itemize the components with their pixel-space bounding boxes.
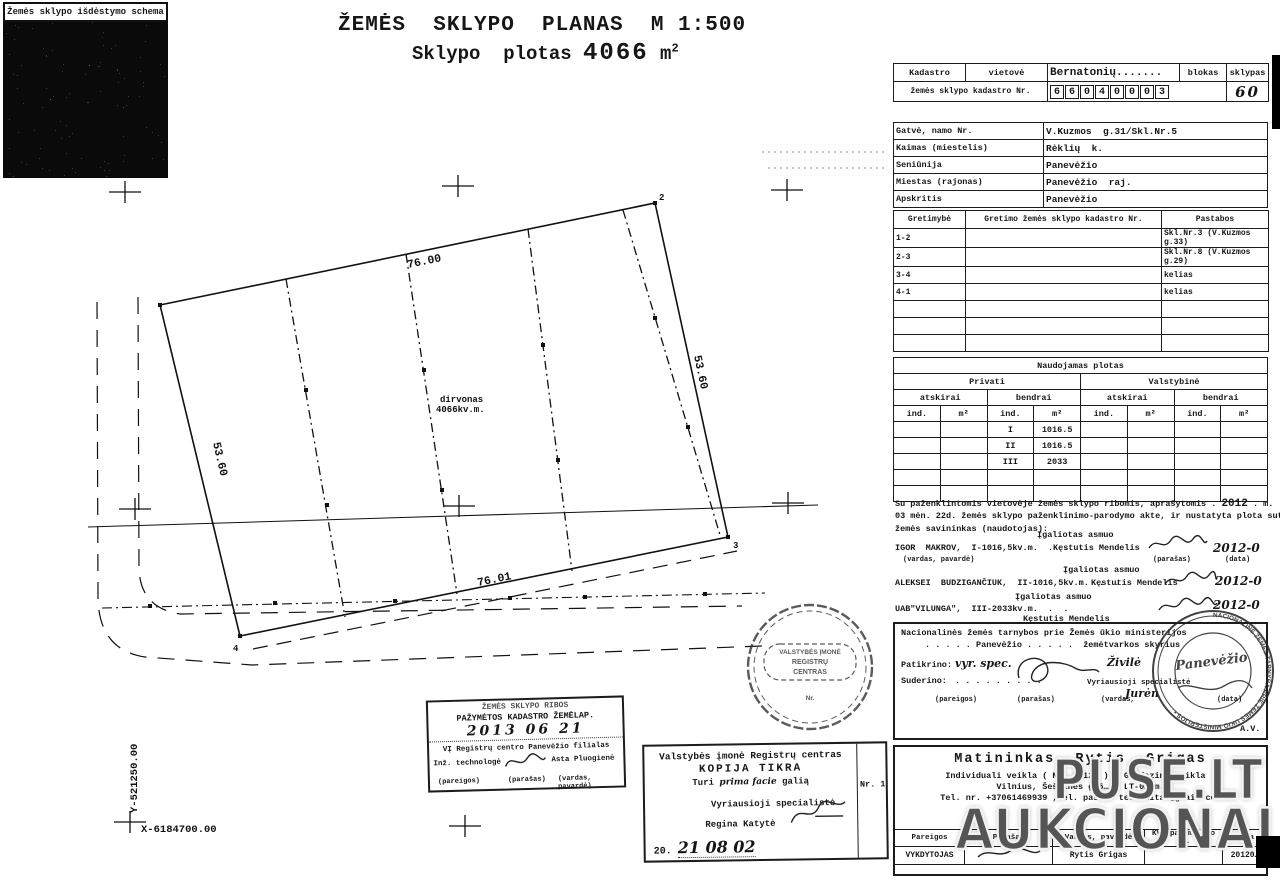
plot-part-ind: I bbox=[987, 422, 1034, 438]
gretimybe-cell bbox=[894, 335, 966, 352]
address-label: Gatvė, namo Nr. bbox=[894, 123, 1044, 140]
sklypas-header: sklypas bbox=[1227, 64, 1269, 82]
schema-caption: Žemės sklypo išdėstymo schema bbox=[3, 2, 168, 22]
sklypas-number-handwritten: 60 bbox=[1227, 82, 1269, 102]
scan-artifact-bar-right bbox=[1272, 55, 1280, 129]
suderino-label: Suderino: bbox=[901, 676, 947, 686]
registru-signature bbox=[785, 796, 849, 833]
ind-header: ind. bbox=[1174, 406, 1221, 422]
privati-header: Privati bbox=[894, 374, 1081, 390]
valstybine-header: Valstybinė bbox=[1081, 374, 1268, 390]
plot-part-area: 1016.5 bbox=[1034, 438, 1081, 454]
gretimo-nr-cell bbox=[966, 301, 1162, 318]
ribos-stamp-box: ŽEMĖS SKLYPO RIBOS PAŽYMĖTOS KADASTRO ŽE… bbox=[426, 695, 626, 792]
gretimybe-cell: 1-2 bbox=[894, 229, 966, 248]
kopija-nr-label: Nr. 1 bbox=[858, 779, 888, 789]
gretimo-nr-cell bbox=[966, 267, 1162, 284]
plot-part-area: 2033 bbox=[1034, 454, 1081, 470]
kopija-tikra-stamp-box: Valstybės įmonė Registrų centras KOPIJA … bbox=[642, 741, 889, 862]
agreement-line1: Su paženklintomis vietovėje žemės sklypo… bbox=[895, 498, 1273, 510]
kadastro-digit: 0 bbox=[1125, 85, 1139, 99]
kadastro-nr-label: žemės sklypo kadastro Nr. bbox=[894, 82, 1048, 102]
signature-date: 2012-0 bbox=[1215, 574, 1262, 588]
sub-label-vardas: (vardas, bbox=[1101, 696, 1135, 704]
pastabos-cell: kelias bbox=[1162, 267, 1269, 284]
coord-y-label: Y-521250.00 bbox=[129, 744, 141, 813]
division-lines bbox=[286, 210, 720, 617]
registru-date: 20. 21 08 02 bbox=[653, 837, 755, 857]
proxy-label: Įgaliotas asmuo bbox=[1063, 565, 1140, 575]
corner-2-label: 2 bbox=[659, 193, 664, 203]
ribos-sub3: (vardas, pavardė) bbox=[558, 773, 624, 791]
sub-label-parasas: (parašas) bbox=[1017, 696, 1055, 704]
kadastro-digit: 6 bbox=[1065, 85, 1079, 99]
prima-facie-post: galią bbox=[777, 776, 810, 786]
ribos-sub1: (pareigos) bbox=[438, 777, 480, 786]
address-value: Panevėžio bbox=[1044, 191, 1268, 208]
kadastro-digit: 0 bbox=[1140, 85, 1154, 99]
corner-3-label: 3 bbox=[733, 541, 738, 551]
prima-facie-italic: prima facie bbox=[719, 777, 776, 788]
dim-top-label: 76.00 bbox=[406, 252, 443, 272]
date-prefix: 20. bbox=[654, 846, 672, 857]
kadastro-digit: 6 bbox=[1050, 85, 1064, 99]
nzt-round-seal: NACIONALINĖ ŽEMĖS TARNYBA PRIE ŽEMĖS ŪKI… bbox=[1148, 604, 1278, 738]
plot-part-ind bbox=[987, 470, 1034, 486]
registru-line1: Valstybės įmonė Registrų centras bbox=[644, 749, 856, 763]
sub-label-signature: (parašas) bbox=[1153, 556, 1191, 564]
m2-header: m² bbox=[940, 406, 987, 422]
seal-handwritten-city: Panevėžio bbox=[1174, 650, 1249, 674]
patikrino-name-handwriting: Živilė bbox=[1107, 656, 1141, 669]
dim-right-label: 53.60 bbox=[690, 354, 710, 391]
plot-part-ind: III bbox=[987, 454, 1034, 470]
sub-label-date: (data) bbox=[1225, 556, 1250, 564]
nzt-dots: . . . . . bbox=[925, 640, 971, 650]
plot-area-sup: 2 bbox=[671, 42, 678, 56]
plot-part-area bbox=[1034, 470, 1081, 486]
ind-header: ind. bbox=[987, 406, 1034, 422]
owner-name: ALEKSEI BUDZIGANČIUK, II-1016,5kv.m. . . bbox=[895, 578, 1119, 588]
proxy-name: Kęstutis Mendelis bbox=[1053, 543, 1140, 553]
pastabos-cell bbox=[1162, 335, 1269, 352]
pastabos-cell: kelias bbox=[1162, 284, 1269, 301]
proxy-label: Įgaliotas asmuo bbox=[1037, 530, 1114, 540]
pareigos-header: Pareigos bbox=[895, 830, 965, 847]
sub-label-pareigos: (pareigos) bbox=[935, 696, 977, 704]
m2-header: m² bbox=[1034, 406, 1081, 422]
agreement-year: 2012 bbox=[1221, 498, 1247, 510]
page-title: ŽEMĖS SKLYPO PLANAS M 1:500 bbox=[338, 14, 746, 37]
road-lines bbox=[97, 297, 762, 665]
kadastro-digit: 0 bbox=[1080, 85, 1094, 99]
agreement-line3: žemės savininkas (naudotojas): bbox=[895, 524, 1048, 534]
ribos-signature bbox=[501, 749, 548, 774]
seal-line1: VALSTYBĖS ĮMONĖ bbox=[779, 648, 841, 656]
gretimo-nr-cell bbox=[966, 229, 1162, 248]
pastabos-cell: Skl.Nr.3 (V.Kuzmos g.33) bbox=[1162, 229, 1269, 248]
proxy-label: Įgaliotas asmuo bbox=[1015, 592, 1092, 602]
plot-boundary bbox=[160, 203, 728, 636]
land-use-label: dirvonas bbox=[440, 395, 483, 405]
m2-header: m² bbox=[1127, 406, 1174, 422]
corner-markers bbox=[158, 201, 730, 638]
kopija-main-area: Valstybės įmonė Registrų centras KOPIJA … bbox=[644, 744, 858, 861]
utility-line bbox=[102, 593, 765, 608]
patikrino-handwriting: vyr. spec. bbox=[955, 657, 1012, 670]
plot-part-area: 1016.5 bbox=[1034, 422, 1081, 438]
kadastro-header: Kadastro bbox=[894, 64, 966, 82]
ribos-role: Inž. technologė bbox=[433, 759, 501, 769]
corner-4-label: 4 bbox=[233, 644, 239, 654]
gretimo-nr-cell bbox=[966, 318, 1162, 335]
survey-line bbox=[88, 505, 818, 527]
signature-date: 2012-0 bbox=[1213, 541, 1260, 555]
sub-label-name: (vardas, pavardė) bbox=[903, 556, 974, 564]
pastabos-cell bbox=[1162, 301, 1269, 318]
owner1-signature bbox=[1147, 534, 1209, 554]
plot-area-unit: m bbox=[649, 43, 672, 65]
atskirai-header: atskirai bbox=[1081, 390, 1175, 406]
registru-name: Regina Katytė bbox=[705, 819, 775, 830]
address-value: Rėklių k. bbox=[1044, 140, 1268, 157]
vykdytojas-cell: VYKDYTOJAS bbox=[895, 847, 965, 865]
watermark-aukcionai: AUKCIONAI bbox=[955, 797, 1275, 863]
gretimo-nr-cell bbox=[966, 248, 1162, 267]
coord-x-label: X-6184700.00 bbox=[141, 824, 217, 836]
land-area-label: 4066kv.m. bbox=[436, 405, 485, 415]
ribos-name: Asta Pluogienė bbox=[551, 755, 614, 765]
bendrai-header: bendrai bbox=[1174, 390, 1268, 406]
address-value: V.Kuzmos g.31/Skl.Nr.5 bbox=[1044, 123, 1268, 140]
scan-artifact-corner bbox=[1256, 836, 1280, 868]
gretimybe-cell: 4-1 bbox=[894, 284, 966, 301]
gretimybe-cell bbox=[894, 318, 966, 335]
gretimybe-header: Gretimybė bbox=[894, 211, 966, 229]
gretimybe-cell bbox=[894, 301, 966, 318]
pastabos-cell bbox=[1162, 318, 1269, 335]
owner-name: UAB"VILUNGA", III-2033kv.m. . . bbox=[895, 604, 1068, 614]
bendrai-header: bendrai bbox=[987, 390, 1081, 406]
seal-line2: REGISTRŲ bbox=[792, 659, 828, 666]
kopija-nr-column: Nr. 1 bbox=[856, 743, 889, 857]
prima-facie-line: Turi prima facie galią bbox=[645, 776, 857, 789]
ribos-sub2: (parašas) bbox=[508, 775, 546, 784]
address-value: Panevėžio bbox=[1044, 157, 1268, 174]
seal-line4: Nr. bbox=[806, 695, 815, 702]
pastabos-cell: Skl.Nr.8 (V.Kuzmos g.29) bbox=[1162, 248, 1269, 267]
gretimybe-cell: 2-3 bbox=[894, 248, 966, 267]
address-value: Panevėžio raj. bbox=[1044, 174, 1268, 191]
naudojamas-plotas-table: Naudojamas plotas Privati Valstybinė ats… bbox=[893, 357, 1268, 502]
plotas-title: Naudojamas plotas bbox=[894, 358, 1268, 374]
address-label: Seniūnija bbox=[894, 157, 1044, 174]
subtitle-label: Sklypo plotas bbox=[412, 43, 583, 65]
vietove-value: Bernatonių....... bbox=[1048, 64, 1180, 82]
plot-area-value: 4066 bbox=[583, 40, 649, 67]
ribos-date-handwritten: 2013 06 21 bbox=[428, 719, 622, 742]
gretimo-kadastro-header: Gretimo žemės sklypo kadastro Nr. bbox=[966, 211, 1162, 229]
atskirai-header: atskirai bbox=[894, 390, 988, 406]
kopija-tikra-title: KOPIJA TIKRA bbox=[644, 762, 856, 777]
division-markers bbox=[304, 316, 690, 507]
agreement-line2: 03 mėn. 22d. žemės sklypo paženklinimo-p… bbox=[895, 511, 1280, 521]
gretimo-nr-cell bbox=[966, 335, 1162, 352]
schema-thumbnail-image bbox=[3, 22, 168, 178]
pastabos-header: Pastabos bbox=[1162, 211, 1269, 229]
kadastro-digit: 0 bbox=[1110, 85, 1124, 99]
prima-facie-pre: Turi bbox=[692, 778, 719, 788]
scanned-land-plan-document: 76.00 53.60 53.60 76.01 dirvonas 4066kv.… bbox=[0, 0, 1280, 880]
kadastro-table: Kadastro vietovė Bernatonių....... bloka… bbox=[893, 63, 1269, 102]
nzt-line1: Nacionalinės žemės tarnybos prie Žemės ū… bbox=[901, 628, 1187, 638]
blokas-header: blokas bbox=[1180, 64, 1227, 82]
road-edge-dashed bbox=[253, 551, 737, 649]
date-handwritten: 21 08 02 bbox=[678, 837, 756, 858]
dim-bottom-label: 76.01 bbox=[476, 570, 512, 590]
kadastro-digit: 3 bbox=[1155, 85, 1169, 99]
vietove-header: vietovė bbox=[966, 64, 1048, 82]
ind-header: ind. bbox=[1081, 406, 1128, 422]
address-label: Kaimas (miestelis) bbox=[894, 140, 1044, 157]
dotted-leaders bbox=[762, 152, 888, 168]
seal-line3: CENTRAS bbox=[793, 669, 827, 676]
address-label: Apskritis bbox=[894, 191, 1044, 208]
kadastro-digit: 4 bbox=[1095, 85, 1109, 99]
dim-left-label: 53.60 bbox=[209, 441, 229, 478]
owner2-signature bbox=[1163, 570, 1219, 590]
gretimybe-table: Gretimybė Gretimo žemės sklypo kadastro … bbox=[893, 210, 1269, 352]
agreement-line1-text: Su paženklintomis vietovėje žemės sklypo… bbox=[895, 499, 1221, 509]
page-subtitle: Sklypo plotas 4066 m2 bbox=[412, 40, 679, 67]
address-label: Miestas (rajonas) bbox=[894, 174, 1044, 191]
m2-header: m² bbox=[1221, 406, 1268, 422]
address-table: Gatvė, namo Nr. V.Kuzmos g.31/Skl.Nr.5 K… bbox=[893, 122, 1268, 208]
gretimybe-cell: 3-4 bbox=[894, 267, 966, 284]
kadastro-digit-boxes: 66040003 bbox=[1048, 82, 1227, 102]
agreement-line1-suffix: . m. bbox=[1248, 499, 1274, 509]
suderino-dots: . . . . . . . . . bbox=[955, 676, 1042, 686]
plot-part-ind: II bbox=[987, 438, 1034, 454]
gretimo-nr-cell bbox=[966, 284, 1162, 301]
ind-header: ind. bbox=[894, 406, 941, 422]
patikrino-label: Patikrino: bbox=[901, 660, 952, 670]
registru-round-seal: VALSTYBĖS ĮMONĖ REGISTRŲ CENTRAS Nr. bbox=[742, 596, 878, 738]
